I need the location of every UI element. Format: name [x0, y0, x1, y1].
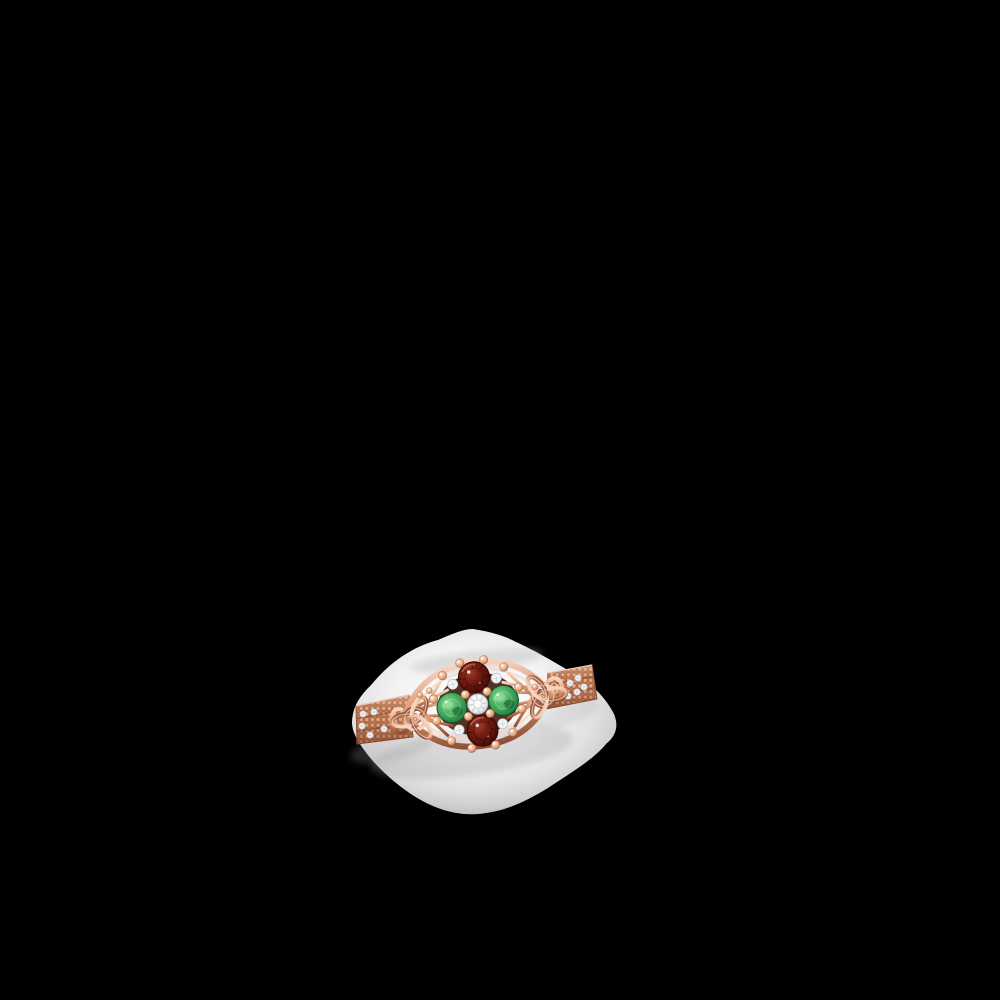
band-diamond [575, 675, 581, 681]
band-diamond [371, 709, 377, 715]
ring-artwork [0, 0, 1000, 1000]
band-diamond [381, 726, 387, 732]
band-diamond [574, 689, 580, 695]
band-diamond [359, 723, 365, 729]
band-diamond [360, 711, 366, 717]
band-diamond [567, 680, 573, 686]
band-diamond [581, 684, 587, 690]
ring-product-image [0, 0, 1000, 1000]
band-diamond [367, 732, 373, 738]
background [0, 0, 1000, 1000]
